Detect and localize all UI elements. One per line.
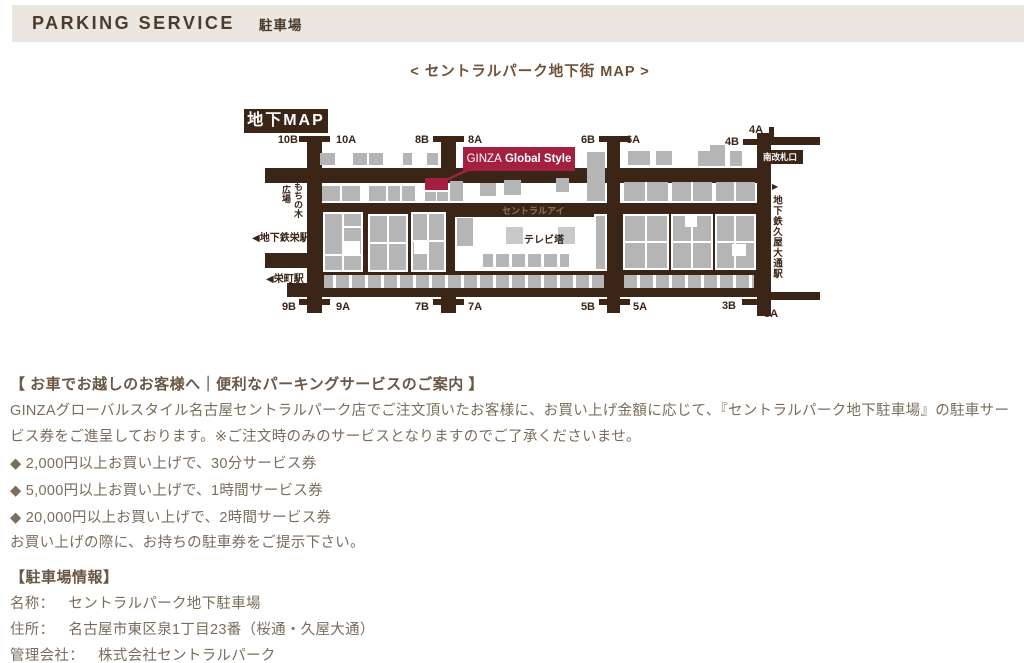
hisaya-odori-station-label: 地下鉄久屋大通駅 bbox=[769, 195, 783, 279]
exit-8A: 8A bbox=[468, 133, 482, 147]
service-note: お買い上げの際に、お持ちの駐車券をご提示下さい。 bbox=[10, 531, 365, 552]
info-label: 住所： bbox=[10, 622, 54, 638]
underground-map: 地下MAP GINZA Global Style 10B 10A 8B 8A 6… bbox=[240, 103, 820, 323]
info-label: 名称： bbox=[10, 596, 54, 612]
sakaemachi-station-label: ◀栄町駅 bbox=[266, 270, 304, 285]
service-description: GINZAグローバルスタイル名古屋セントラルパーク店でご注文頂いたお客様に、お買… bbox=[10, 398, 1012, 450]
exit-5B: 5B bbox=[565, 300, 595, 314]
exit-7B: 7B bbox=[399, 300, 429, 314]
info-value: セントラルパーク地下駐車場 bbox=[68, 596, 260, 612]
exit-3B: 3B bbox=[706, 299, 736, 313]
exit-6A: 6A bbox=[626, 133, 640, 147]
tv-tower-label: テレビ塔 bbox=[524, 231, 564, 246]
map-badge: 地下MAP bbox=[244, 109, 328, 133]
exit-10A: 10A bbox=[336, 133, 356, 147]
service-tier-1: ◆ 2,000円以上お買い上げで、30分サービス券 bbox=[10, 452, 317, 473]
info-value: 名古屋市東区泉1丁目23番（桜通・久屋大通） bbox=[68, 622, 374, 638]
sakae-subway-station-label: ◀地下鉄栄駅 bbox=[252, 229, 310, 244]
exit-10B: 10B bbox=[268, 133, 298, 147]
store-name: Global Style bbox=[505, 153, 571, 165]
exit-5A: 5A bbox=[633, 300, 647, 314]
exit-4B: 4B bbox=[709, 135, 739, 149]
service-tier-3: ◆ 20,000円以上お買い上げで、2時間サービス券 bbox=[10, 506, 331, 527]
store-brand: GINZA bbox=[467, 153, 502, 165]
map-title: < セントラルパーク地下街 MAP > bbox=[240, 60, 820, 81]
section-header-bar: PARKING SERVICE 駐車場 bbox=[12, 5, 1024, 42]
info-label: 管理会社： bbox=[10, 648, 84, 663]
info-row-name: 名称：セントラルパーク地下駐車場 bbox=[10, 592, 261, 613]
exit-7A: 7A bbox=[468, 300, 482, 314]
exit-4A: 4A bbox=[749, 123, 763, 137]
page-title: PARKING SERVICE bbox=[32, 13, 235, 34]
exit-9B: 9B bbox=[266, 300, 296, 314]
south-gate-label: 南改札口 bbox=[757, 150, 803, 164]
central-eye-corridor-label: セントラルアイ bbox=[502, 204, 565, 217]
page-subtitle: 駐車場 bbox=[259, 14, 303, 34]
plaza-label-hiroba: 広場 bbox=[280, 185, 293, 203]
highlight-store-label: GINZA Global Style bbox=[463, 147, 575, 171]
info-row-company: 管理会社：株式会社セントラルパーク bbox=[10, 644, 276, 663]
exit-3A: 3A bbox=[764, 307, 778, 321]
service-heading: 【 お車でお越しのお客様へ｜便利なパーキングサービスのご案内 】 bbox=[10, 373, 484, 394]
info-value: 株式会社セントラルパーク bbox=[98, 648, 276, 663]
exit-8B: 8B bbox=[399, 133, 429, 147]
hisaya-arrow-icon: ▶ bbox=[772, 182, 778, 191]
highlight-store-block bbox=[425, 178, 448, 190]
stall-rows bbox=[324, 275, 754, 288]
exit-6B: 6B bbox=[565, 133, 595, 147]
exit-9A: 9A bbox=[336, 300, 350, 314]
service-tier-2: ◆ 5,000円以上お買い上げで、1時間サービス券 bbox=[10, 479, 323, 500]
parking-service-page: PARKING SERVICE 駐車場 < セントラルパーク地下街 MAP > bbox=[0, 0, 1024, 663]
info-row-address: 住所：名古屋市東区泉1丁目23番（桜通・久屋大通） bbox=[10, 618, 375, 639]
parking-info-heading: 【駐車場情報】 bbox=[10, 566, 119, 587]
plaza-label-mochinoki: もちの木 bbox=[292, 182, 305, 218]
